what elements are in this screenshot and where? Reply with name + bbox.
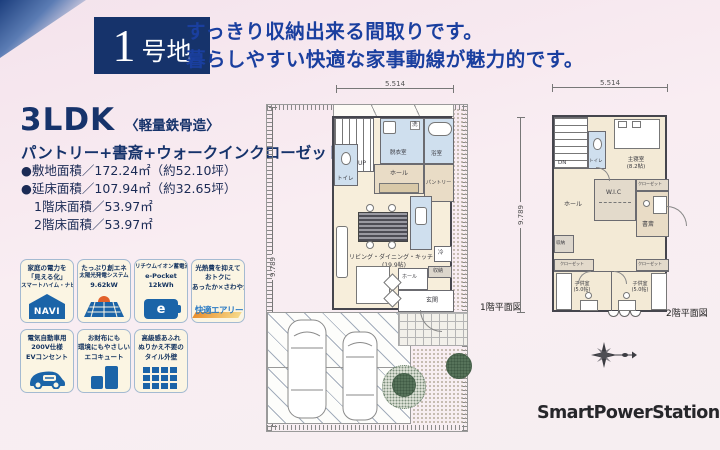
area-list: ●敷地面積／172.24㎡（約52.10坪） ●延床面積／107.94㎡（約32…: [21, 162, 236, 234]
badge-kaiteki-airy: 光熱費を抑えて おトクに あったか×さわやか 快適エアリー: [191, 259, 245, 323]
badge-text: e-Pocket: [135, 272, 187, 281]
lot-number: 1: [112, 23, 135, 69]
floor1-caption: 1階平面図: [480, 300, 522, 313]
badge-tile-wall: 高級感あふれ ぬりかえ不要の タイル外壁: [134, 329, 188, 393]
badge-ev-outlet: 電気自動車用 200V仕様 EVコンセント: [20, 329, 74, 393]
kids-wall: [554, 271, 669, 272]
closet-label: クローゼット: [638, 261, 662, 266]
layout-type: 3LDK 〈軽量鉄骨造〉: [20, 102, 220, 138]
kaiteki-airy-label: 快適エアリー: [195, 304, 243, 316]
wash-label: 洗: [410, 121, 420, 130]
headline-line1: すっきり収納出来る間取りです。: [186, 18, 584, 46]
storage-1f-label: 収納: [433, 268, 443, 274]
sofa: [336, 226, 348, 278]
study-label: 書斎: [642, 221, 654, 229]
badge-text: おトクに: [192, 273, 244, 282]
plan2-height-dimension: 9.789: [520, 117, 521, 313]
fridge-label: 冷: [438, 250, 444, 257]
headline: すっきり収納出来る間取りです。 暮らしやすい快適な家事動線が魅力的です。: [186, 18, 584, 75]
corner-accent: [0, 0, 86, 58]
chair: [366, 241, 374, 249]
total-floor-area: ●延床面積／107.94㎡（約32.65坪）: [21, 180, 236, 198]
hall-1f-lower-label: ホール: [402, 274, 417, 280]
master-bedroom-label: 主寝室 (8.2帖): [606, 157, 666, 171]
flyer-page: 1 号地 すっきり収納出来る間取りです。 暮らしやすい快適な家事動線が魅力的です…: [0, 0, 720, 450]
car-outline: [286, 318, 328, 420]
closet-label: クローゼット: [560, 261, 584, 266]
badge-e-pocket: リチウムイオン蓄電池 e-Pocket 12kWh e: [134, 259, 188, 323]
balcony-scallop: [619, 311, 630, 317]
tile-wall-icon: [143, 366, 179, 389]
toilet-2f-label: トイレ: [589, 159, 603, 165]
badge-text: 環境にもやさしい: [78, 343, 130, 352]
pillow: [618, 121, 627, 128]
car-outline: [341, 330, 379, 422]
badge-text: 9.62kW: [78, 281, 130, 290]
badge-text: ぬりかえ不要の: [135, 343, 187, 352]
ev-car-icon: [27, 363, 67, 389]
site-area: ●敷地面積／172.24㎡（約52.10坪）: [21, 162, 236, 180]
desk-kids2: [618, 300, 636, 311]
badge-text: 「見える化」: [21, 273, 73, 282]
chair: [388, 241, 396, 249]
kaiteki-airy-logo: 快適エアリー: [194, 304, 242, 319]
badge-smart-heim-navi: 家庭の電力を 「見える化」 スマートハイム・ナビ NAVI: [20, 259, 74, 323]
badge-text: 太陽光発電システム: [78, 273, 130, 281]
plan2-width-dimension: 5.514: [552, 87, 668, 88]
battery-label: e: [157, 303, 166, 316]
dining-table: [358, 212, 408, 242]
entrance-label: 玄関: [426, 297, 438, 305]
chair: [366, 204, 374, 212]
navi-label: NAVI: [34, 306, 60, 319]
storage-2f-label: 収納: [556, 241, 565, 247]
gravel-strip: [452, 108, 466, 310]
bathroom-label: 浴室: [431, 151, 442, 158]
solar-panel-icon: [83, 292, 125, 319]
badge-text: 家庭の電力を: [21, 264, 73, 273]
brand-logo: SmartPowerStation FX: [537, 395, 720, 424]
toilet-1f-label: トイレ: [337, 176, 354, 183]
floor1-area: 1階床面積／53.97㎡: [21, 198, 236, 216]
balcony-scallop: [630, 311, 641, 317]
pantry-label: パントリー: [426, 180, 451, 186]
navi-house-icon: NAVI: [29, 294, 65, 319]
badge-text: 12kWh: [135, 281, 187, 290]
walk-in-closet: [594, 179, 636, 221]
badge-text: お財布にも: [78, 334, 130, 343]
ecocute-icon: [91, 366, 118, 389]
floor2-area: 2階床面積／53.97㎡: [21, 216, 236, 234]
compass-north-icon: [590, 341, 638, 371]
shrub: [446, 353, 472, 379]
hall-1f-upper-label: ホール: [390, 170, 408, 178]
badge-text: スマートハイム・ナビ: [21, 283, 73, 291]
stairs-dn-label: DN: [558, 160, 566, 167]
bed-kids2: [651, 273, 667, 310]
study-room: [636, 191, 669, 237]
structure-type: 〈軽量鉄骨造〉: [125, 118, 220, 134]
layout-type-value: 3LDK: [20, 102, 115, 138]
stairs-up-label: UP: [358, 160, 366, 168]
lot-suffix: 号地: [141, 32, 191, 68]
pillow: [632, 121, 641, 128]
kitchen-counter: [410, 196, 432, 250]
floor2-building: DN トイレ 主寝室 (8.2帖) ホール W.I.C クローゼット 書斎: [552, 115, 667, 312]
hall-1f-upper: [374, 164, 424, 194]
door-arc: [614, 271, 627, 284]
hall-2f-label: ホール: [564, 201, 582, 209]
badge-text: 高級感あふれ: [135, 334, 187, 343]
badge-text: たっぷり創エネ: [78, 264, 130, 273]
desk-kids1: [580, 300, 598, 311]
kids-divider-wall: [611, 271, 612, 314]
closet-label: クローゼット: [638, 181, 662, 186]
plan1-width-dimension: 5.514: [336, 88, 454, 89]
chair: [585, 292, 592, 299]
badge-text: リチウムイオン蓄電池: [135, 264, 187, 272]
exterior-door-arc: [667, 206, 687, 226]
headline-line2: 暮らしやすい快適な家事動線が魅力的です。: [186, 46, 584, 74]
floor1-building: UP トイレ 脱衣室 洗 浴室 ホール パントリー: [332, 116, 452, 310]
battery-icon: e: [144, 299, 178, 319]
door-arc: [578, 271, 591, 284]
badge-solar-system: たっぷり創エネ 太陽光発電システム 9.62kW: [77, 259, 131, 323]
bed-kids1: [556, 273, 572, 310]
chair: [623, 292, 630, 299]
dressing-label: 脱衣室: [390, 150, 407, 157]
fence-bottom: [267, 425, 467, 430]
brand-name: SmartPowerStation: [537, 403, 720, 423]
badge-text: 電気自動車用: [21, 334, 73, 343]
badge-text: 200V仕様: [21, 343, 73, 352]
balcony-scallop: [608, 311, 619, 317]
wic-label: W.I.C: [606, 189, 621, 197]
floor2-caption: 2階平面図: [666, 306, 708, 319]
chair: [388, 204, 396, 212]
shrub: [392, 373, 416, 397]
badge-ecocute: お財布にも 環境にもやさしい エコキュート: [77, 329, 131, 393]
badge-text: 光熱費を抑えて: [192, 264, 244, 273]
